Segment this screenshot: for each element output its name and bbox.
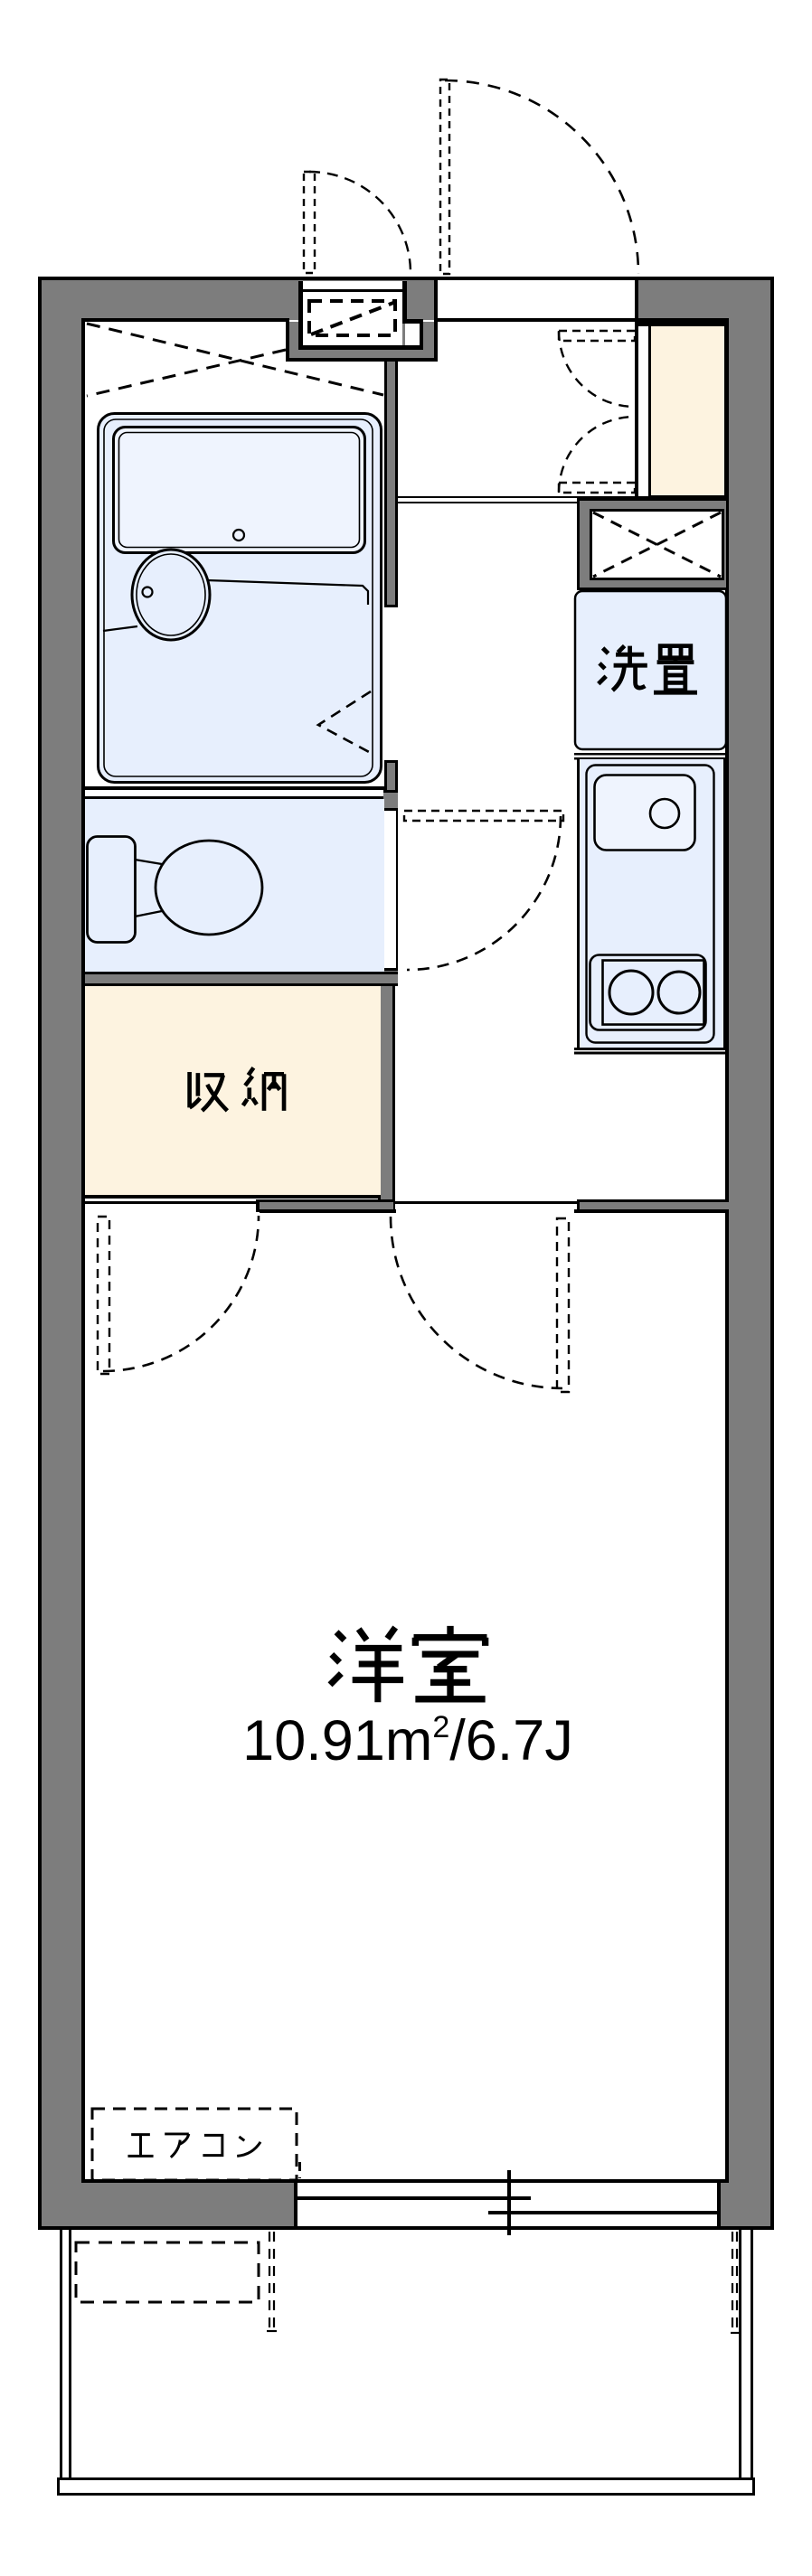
svg-text:10.91m2/6.7J: 10.91m2/6.7J	[242, 1709, 573, 1772]
